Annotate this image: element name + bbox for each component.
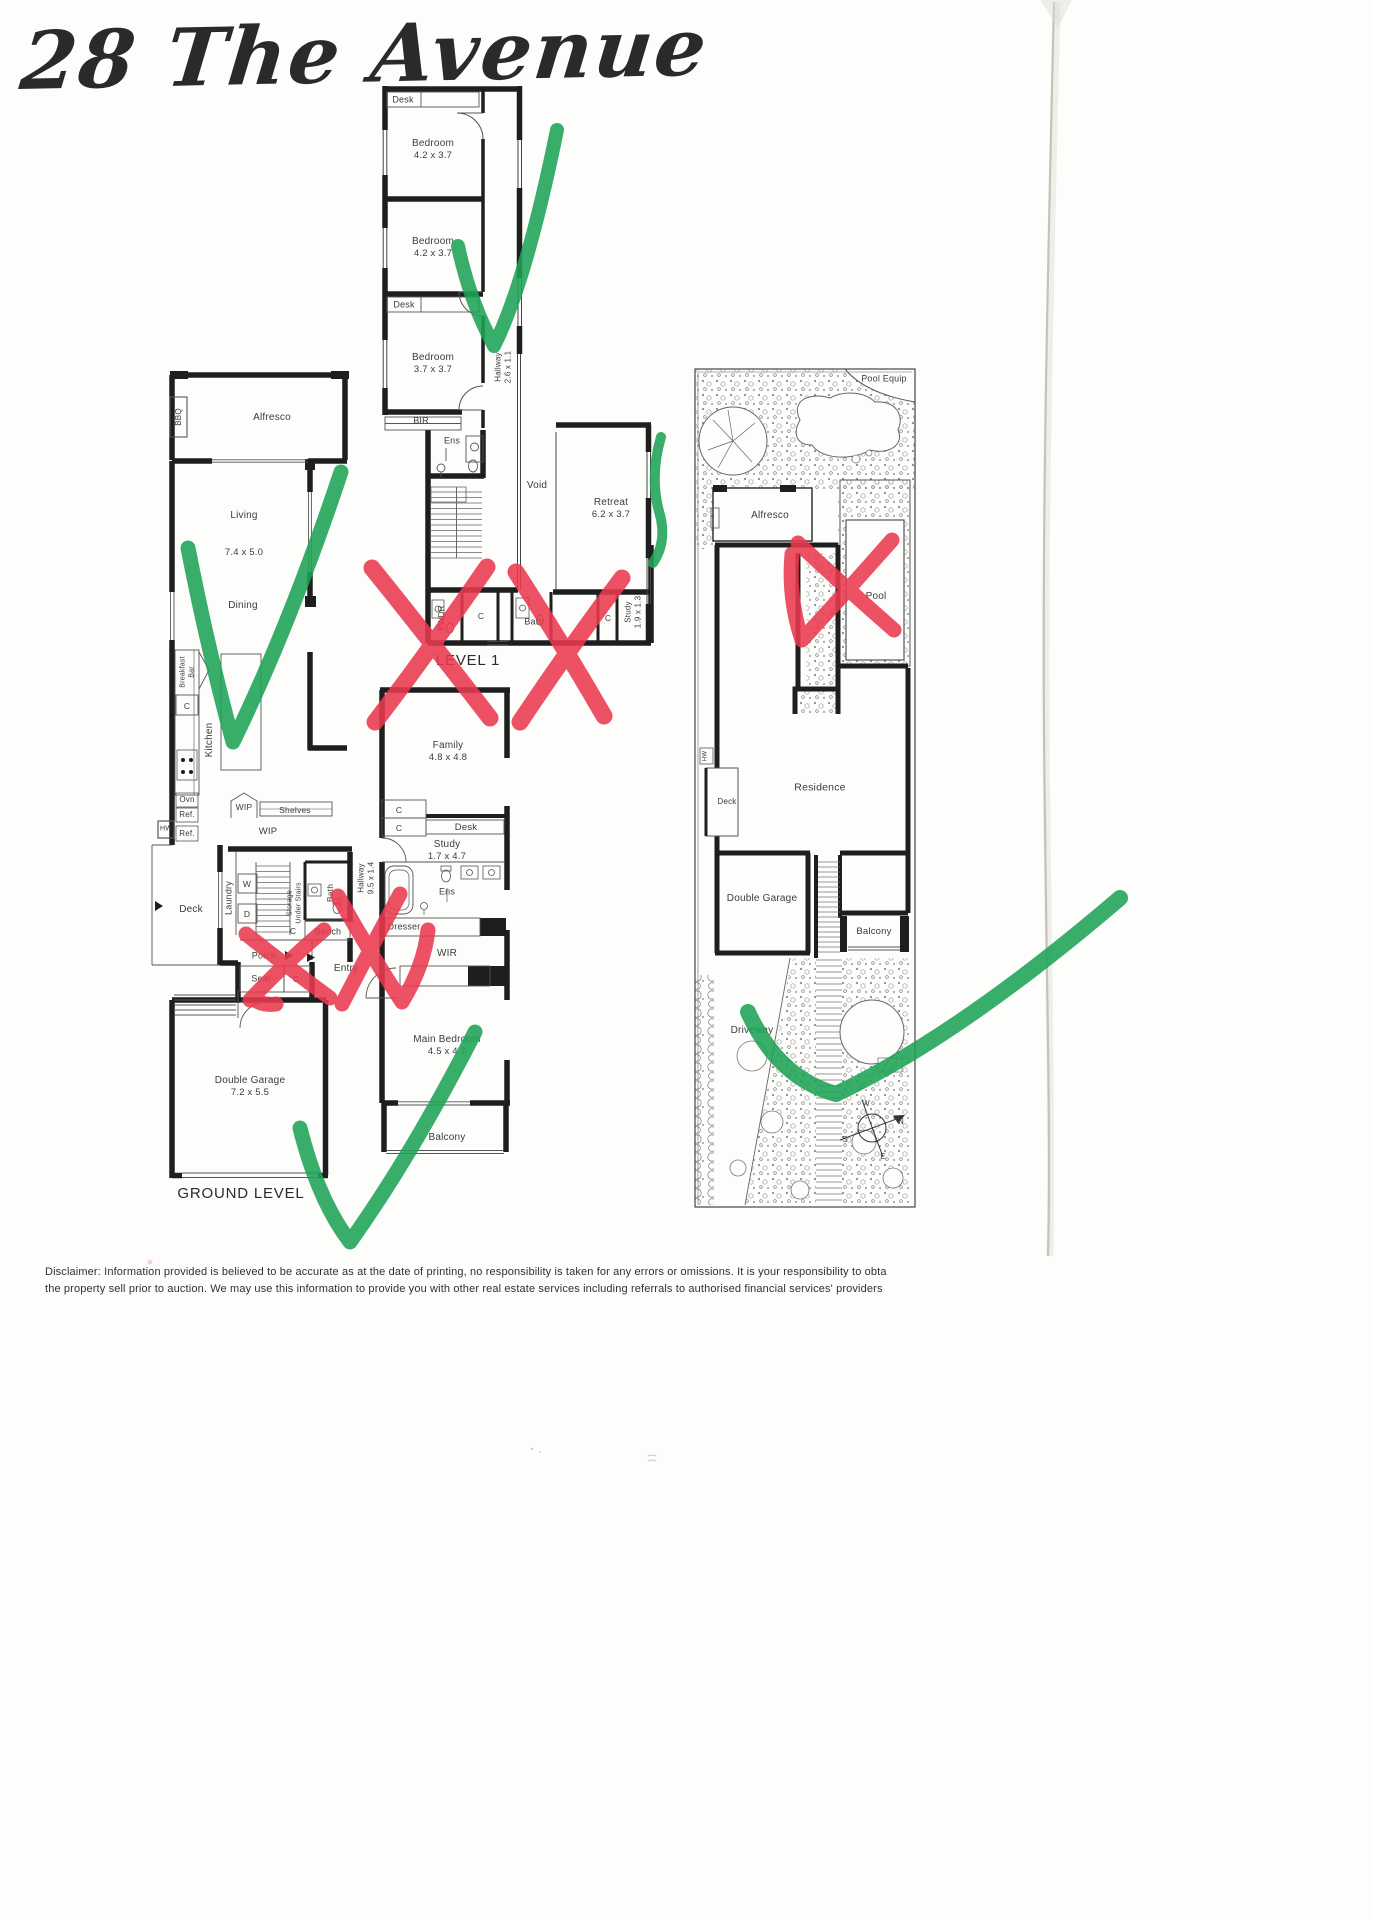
room-label-double-garage-g: Double Garage 7.2 x 5.5 bbox=[215, 1075, 285, 1099]
living-dims: 7.4 x 5.0 bbox=[225, 547, 263, 559]
room-label-entry: Entry bbox=[334, 963, 358, 975]
label-hw-g: HW bbox=[160, 826, 172, 835]
study-l1-dims: 1.9 x 1.3 bbox=[633, 596, 643, 629]
hallway-l1-name: Hallway bbox=[493, 351, 503, 384]
label-seat: Seat bbox=[251, 974, 270, 985]
site-label-pool-equip: Pool Equip bbox=[861, 374, 907, 385]
room-label-deck-g: Deck bbox=[179, 904, 203, 916]
scanned-floorplan-page: 28 The Avenue bbox=[0, 0, 1373, 1920]
main-bedroom-dims: 4.5 x 4.7 bbox=[413, 1046, 480, 1058]
storage-line1: Storage bbox=[286, 882, 295, 923]
room-label-ens-l1: Ens bbox=[444, 436, 460, 447]
storage-line2: Under Stairs bbox=[295, 882, 304, 923]
bedroom1-dims: 4.2 x 3.7 bbox=[412, 150, 454, 162]
room-label-balcony-g: Balcony bbox=[429, 1132, 466, 1144]
retreat-name: Retreat bbox=[592, 497, 630, 509]
bedroom2-name: Bedroom bbox=[412, 236, 454, 248]
room-label-dining: Dining bbox=[228, 600, 258, 612]
closet-label-c1: C bbox=[478, 611, 484, 621]
room-label-bath-l1: Bath bbox=[524, 617, 543, 628]
site-label-residence: Residence bbox=[794, 782, 845, 795]
hallway-g-dims: 9.5 x 1.4 bbox=[366, 862, 376, 895]
room-label-hallway-g: Hallway 9.5 x 1.4 bbox=[356, 862, 376, 895]
compass-west: W bbox=[862, 1099, 870, 1109]
room-label-main-bedroom: Main Bedroom 4.5 x 4.7 bbox=[413, 1034, 480, 1058]
label-bbq: BBQ bbox=[174, 408, 184, 426]
site-label-deck: Deck bbox=[717, 797, 736, 807]
site-label-driveway: Driveway bbox=[731, 1025, 774, 1037]
scan-artifacts bbox=[148, 0, 1073, 1461]
compass-north: N bbox=[898, 1117, 904, 1127]
room-label-bedroom-2: Bedroom 4.2 x 3.7 bbox=[412, 236, 454, 260]
label-ref-2: Ref. bbox=[179, 829, 194, 839]
hallway-l1-dims: 2.6 x 1.1 bbox=[503, 351, 513, 384]
room-label-study-l1: Study 1.9 x 1.3 bbox=[623, 596, 643, 629]
room-label-hallway-l1: Hallway 2.6 x 1.1 bbox=[493, 351, 513, 384]
site-label-pool: Pool bbox=[866, 591, 887, 603]
label-bench: Bench bbox=[315, 927, 342, 938]
label-wip-nook: WIP bbox=[236, 802, 253, 812]
room-label-family: Family 4.8 x 4.8 bbox=[429, 740, 467, 764]
label-desk-g: Desk bbox=[455, 822, 477, 834]
main-bedroom-name: Main Bedroom bbox=[413, 1034, 480, 1046]
room-label-retreat: Retreat 6.2 x 3.7 bbox=[592, 497, 630, 521]
label-ovn: Ovn bbox=[179, 795, 194, 805]
disclaimer-line-1: Disclaimer: Information provided is beli… bbox=[45, 1266, 887, 1278]
hallway-g-name: Hallway bbox=[356, 862, 366, 895]
garage-g-dims: 7.2 x 5.5 bbox=[215, 1087, 285, 1099]
closet-label-c3: C bbox=[184, 701, 190, 711]
label-breakfast-bar: Breakfast Bar bbox=[179, 656, 196, 687]
compass-south: S bbox=[842, 1135, 848, 1145]
room-label-laundry: Laundry bbox=[224, 881, 235, 915]
room-label-desk-mid: Desk bbox=[393, 300, 414, 311]
room-label-wir: WIR bbox=[437, 948, 457, 960]
room-label-bir: BIR bbox=[413, 416, 429, 427]
closet-label-c7: C bbox=[293, 974, 299, 984]
breakfast-bar-line1: Breakfast bbox=[179, 656, 188, 687]
room-label-wip: WIP bbox=[259, 826, 278, 838]
breakfast-bar-line2: Bar bbox=[188, 656, 197, 687]
site-label-alfresco: Alfresco bbox=[751, 510, 789, 522]
garage-g-name: Double Garage bbox=[215, 1075, 285, 1087]
bedroom2-dims: 4.2 x 3.7 bbox=[412, 248, 454, 260]
room-label-void: Void bbox=[527, 480, 547, 492]
family-name: Family bbox=[429, 740, 467, 752]
family-dims: 4.8 x 4.8 bbox=[429, 752, 467, 764]
disclaimer-line-2: the property sell prior to auction. We m… bbox=[45, 1283, 883, 1295]
ground-level-title: GROUND LEVEL bbox=[177, 1185, 304, 1203]
room-label-ens-g: Ens bbox=[439, 887, 455, 898]
site-label-double-garage: Double Garage bbox=[727, 893, 797, 905]
room-label-pwdr: PWDR bbox=[437, 605, 447, 630]
bedroom1-name: Bedroom bbox=[412, 138, 454, 150]
closet-label-c6: C bbox=[290, 926, 296, 936]
room-label-bedroom-3: Bedroom 3.7 x 3.7 bbox=[412, 352, 454, 376]
closet-label-c2: C bbox=[605, 613, 611, 623]
room-label-alfresco-g: Alfresco bbox=[253, 412, 291, 424]
study-l1-name: Study bbox=[623, 596, 633, 629]
room-label-bath-g: Bath bbox=[325, 884, 335, 902]
study-g-name: Study bbox=[428, 839, 466, 851]
handwritten-address: 28 The Avenue bbox=[16, 0, 712, 108]
compass-east: E bbox=[880, 1152, 886, 1162]
room-label-study-g: Study 1.7 x 4.7 bbox=[428, 839, 466, 863]
bedroom3-dims: 3.7 x 3.7 bbox=[412, 364, 454, 376]
closet-label-c5: C bbox=[396, 823, 402, 833]
room-label-kitchen: Kitchen bbox=[204, 723, 216, 758]
label-ref-1: Ref. bbox=[179, 810, 194, 820]
site-label-balcony: Balcony bbox=[856, 926, 891, 938]
study-g-dims: 1.7 x 4.7 bbox=[428, 851, 466, 863]
label-dryer: D bbox=[244, 909, 250, 919]
site-label-hw: HW bbox=[702, 751, 709, 761]
room-label-bedroom-1: Bedroom 4.2 x 3.7 bbox=[412, 138, 454, 162]
label-storage-under-stairs: Storage Under Stairs bbox=[286, 882, 303, 923]
level1-title: LEVEL 1 bbox=[436, 652, 500, 670]
closet-label-c4: C bbox=[396, 805, 402, 815]
label-dresser: Dresser bbox=[388, 922, 421, 933]
retreat-dims: 6.2 x 3.7 bbox=[592, 509, 630, 521]
room-label-living: Living bbox=[230, 510, 257, 522]
bedroom3-name: Bedroom bbox=[412, 352, 454, 364]
label-washer: W bbox=[243, 879, 251, 889]
label-shelves: Shelves bbox=[279, 805, 311, 815]
floorplan-drawing bbox=[0, 0, 1373, 1920]
room-label-porch: Porch bbox=[252, 951, 277, 962]
